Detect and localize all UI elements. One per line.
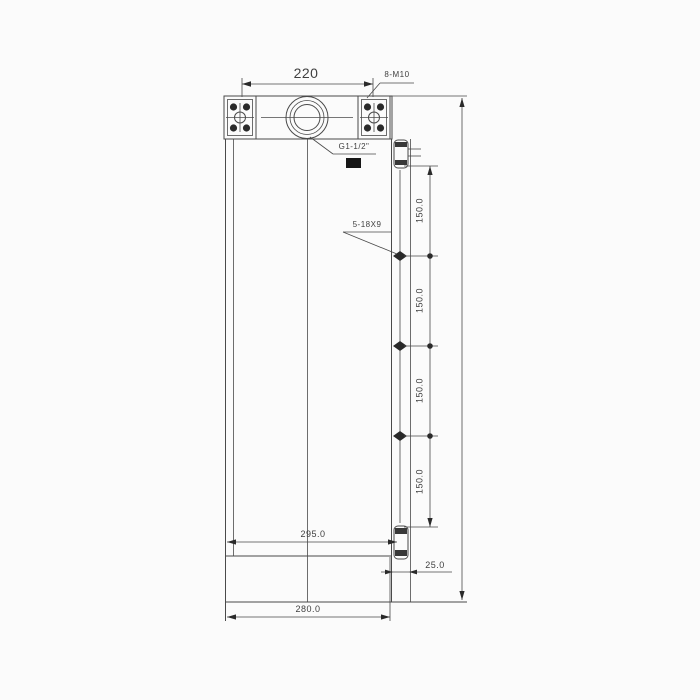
radiator-drawing-geometry (0, 0, 700, 700)
dim-label-pitch-4: 150.0 (416, 462, 427, 502)
dim-label-bracket-width: 25.0 (418, 561, 452, 570)
mounting-slots-leader (343, 232, 397, 254)
left-flange (224, 96, 256, 139)
dim-label-overall-width: 280.0 (288, 605, 328, 614)
dim-label-pitch-3: 150.0 (416, 371, 427, 411)
dim-label-flange-holes: 8-M10 (379, 71, 415, 79)
dimension-295 (227, 539, 397, 544)
center-port (261, 97, 353, 139)
right-flange (358, 96, 390, 139)
dim-label-port-thread: G1-1/2" (331, 143, 377, 151)
dim-label-pitch-2: 150.0 (416, 281, 427, 321)
dim-label-flange-spacing: 220 (288, 66, 324, 80)
bottom-bracket (394, 526, 408, 559)
core-body (226, 139, 468, 621)
dim-label-width-to-bracket: 295.0 (293, 530, 333, 539)
top-bracket (394, 140, 421, 168)
drawing-canvas: 220 8-M10 G1-1/2" 5-18X9 150.0 150.0 150… (0, 0, 700, 700)
dim-label-mounting-slots: 5-18X9 (343, 221, 391, 229)
dim-label-pitch-1: 150.0 (416, 191, 427, 231)
redacted-mark (346, 158, 361, 168)
